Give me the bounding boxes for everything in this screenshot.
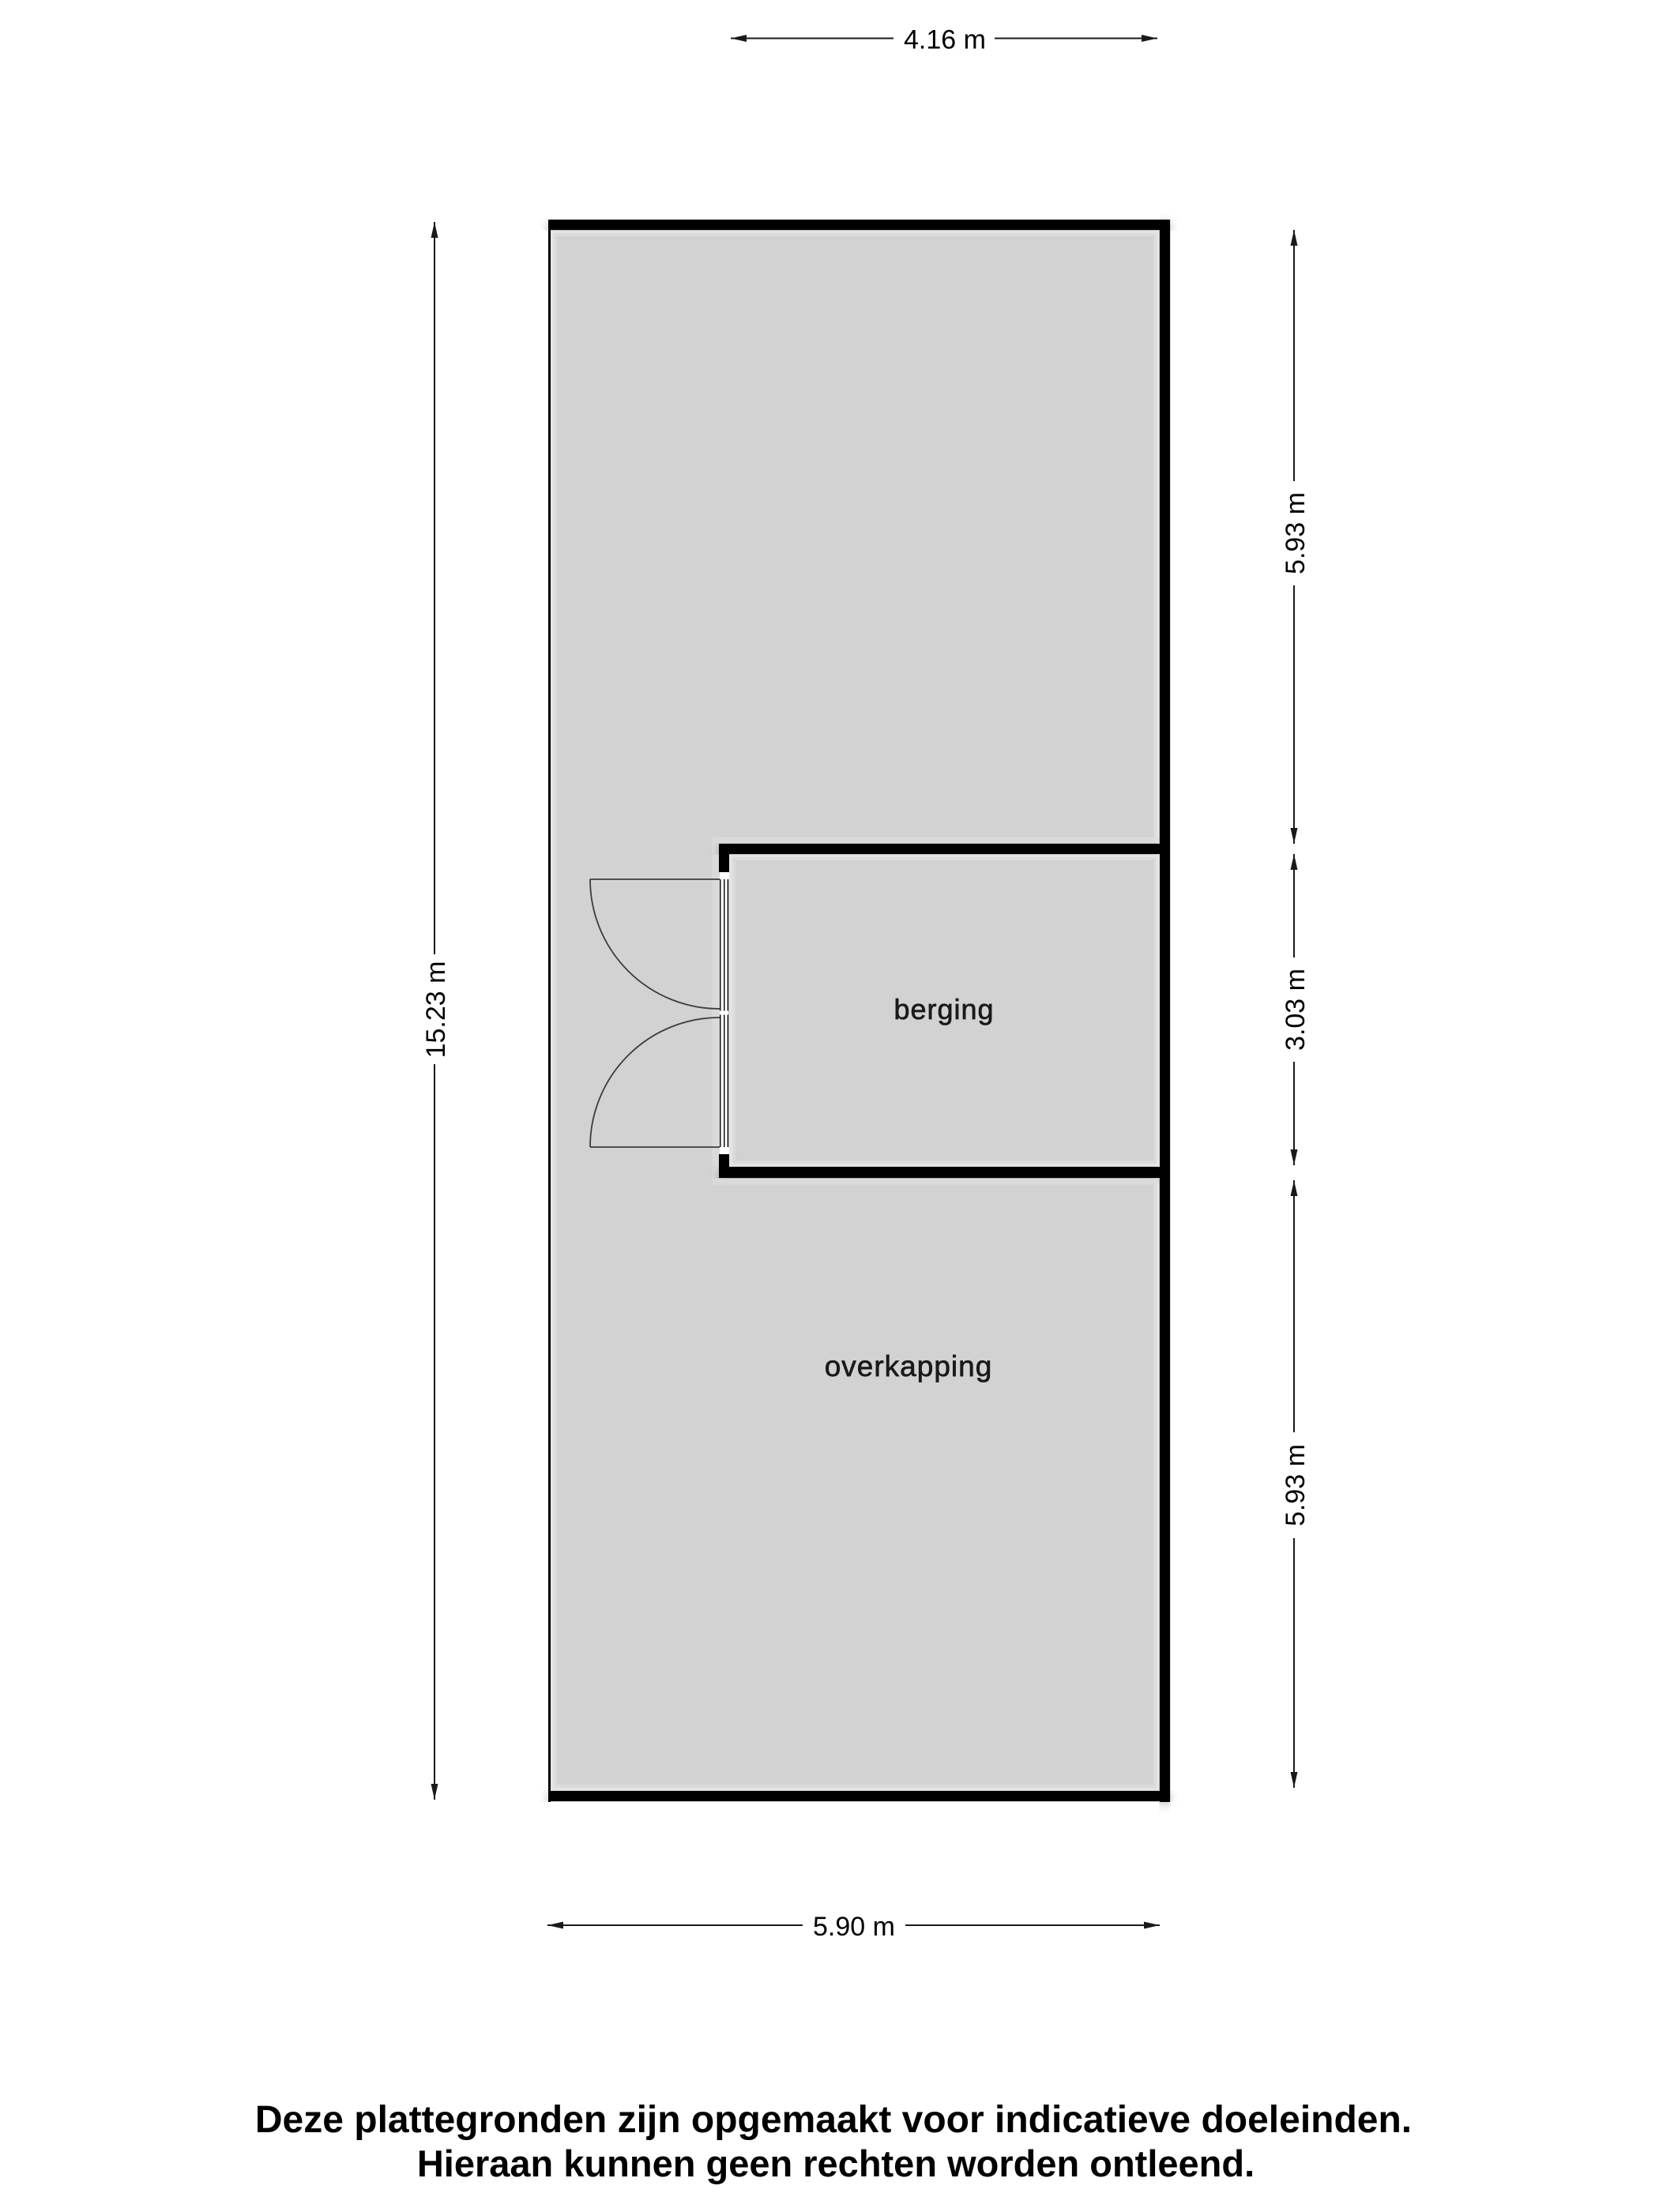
svg-text:5.93 m: 5.93 m: [1281, 1444, 1311, 1526]
svg-text:3.03 m: 3.03 m: [1281, 969, 1311, 1051]
svg-text:4.16 m: 4.16 m: [904, 25, 986, 55]
svg-text:berging: berging: [893, 993, 994, 1025]
svg-text:Hieraan kunnen geen rechten wo: Hieraan kunnen geen rechten worden ontle…: [417, 2142, 1255, 2184]
svg-text:overkapping: overkapping: [825, 1350, 993, 1382]
svg-text:5.90 m: 5.90 m: [813, 1912, 895, 1942]
svg-text:5.93 m: 5.93 m: [1281, 492, 1311, 574]
svg-text:15.23 m: 15.23 m: [421, 961, 451, 1059]
svg-text:Deze plattegronden zijn opgema: Deze plattegronden zijn opgemaakt voor i…: [255, 2099, 1412, 2141]
